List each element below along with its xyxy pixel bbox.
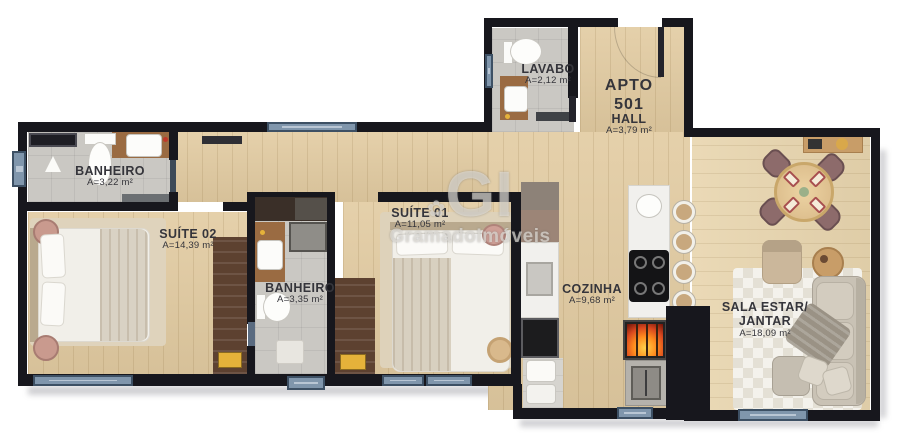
wall-top-left	[18, 122, 488, 132]
wall-kitchen-bottom-a	[513, 408, 620, 419]
bar-stool-1	[673, 201, 695, 223]
sala-name-line2: JANTAR	[715, 314, 815, 328]
bathroom2-accessory-dot	[260, 230, 265, 235]
label-banheiro-social: BANHEIRO A=3,35 m²	[250, 281, 350, 306]
cooktop-burner-1	[634, 256, 647, 269]
wall-living-bottom-b	[806, 410, 880, 421]
label-hall: HALL A=3,79 m²	[579, 112, 679, 137]
label-apto: APTO 501	[579, 76, 679, 114]
wall-kitchen-left-step	[513, 384, 522, 419]
corridor-window	[267, 122, 357, 132]
watermark: ✿GI GramadoImóveis	[388, 162, 552, 248]
bar-stool-2	[673, 231, 695, 253]
bathroom2-door-leaf	[248, 322, 255, 346]
banheiro-suite-name: BANHEIRO	[60, 164, 160, 178]
bathroom1-window	[12, 151, 26, 187]
table-centerpiece	[799, 187, 809, 197]
lavabo-sink	[504, 86, 528, 112]
suite02-nightstand-2	[33, 335, 59, 361]
entry-door-leaf	[658, 27, 664, 77]
suite01-window-1	[382, 375, 424, 386]
hall-area: A=3,79 m²	[579, 126, 679, 137]
bathroom2-window	[287, 376, 325, 390]
suite01-stool	[487, 337, 513, 363]
suite02-pillow-2	[40, 281, 66, 326]
island-sink	[636, 194, 662, 218]
bar-stool-3	[673, 261, 695, 283]
laundry-tub	[526, 384, 556, 404]
suite02-name: SUÍTE 02	[138, 227, 238, 241]
bathroom2-shower	[289, 222, 327, 252]
bathroom1-shelf	[29, 133, 77, 147]
watermark-flower-icon: ✿	[427, 196, 445, 221]
label-sala: SALA ESTAR/ JANTAR A=18,09 m²	[715, 300, 815, 340]
armchair-back	[762, 240, 802, 252]
wall-top-mid-a	[484, 18, 618, 27]
label-banheiro-suite: BANHEIRO A=3,22 m²	[60, 164, 160, 189]
sideboard-box	[808, 139, 822, 149]
watermark-initials: GI	[445, 158, 513, 230]
sala-area: A=18,09 m²	[715, 329, 815, 340]
corridor-shelf	[202, 136, 242, 144]
kitchen-window	[617, 407, 653, 419]
suite01-bed-blanket	[393, 258, 451, 371]
wall-bathroom1-bottom	[18, 202, 178, 211]
wall-bathroom1-right-top	[169, 122, 178, 160]
bathroom2-sink	[257, 240, 283, 270]
chimney-wall	[666, 306, 710, 420]
label-suite02: SUÍTE 02 A=14,39 m²	[138, 227, 238, 252]
banheiro-social-name: BANHEIRO	[250, 281, 350, 295]
cooktop-burner-2	[652, 256, 665, 269]
suite02-area: A=14,39 m²	[138, 241, 238, 252]
lavabo-door-leaf	[569, 96, 576, 122]
label-cozinha: COZINHA A=9,68 m²	[542, 282, 642, 307]
stove-grill-bar-2	[646, 324, 648, 356]
side-table	[812, 247, 844, 279]
bathroom1-sink	[126, 134, 162, 157]
shower-head-icon	[45, 156, 61, 172]
apto-line1: APTO	[579, 76, 679, 95]
suite02-pillow-1	[40, 233, 66, 278]
bathroom2-cabinet-box	[295, 198, 327, 220]
washer	[526, 360, 556, 382]
sofa-backrest	[856, 278, 865, 404]
lavabo-window	[485, 54, 493, 88]
cozinha-area: A=9,68 m²	[542, 296, 642, 307]
wall-hall-right	[684, 18, 693, 136]
sideboard-bowl	[836, 138, 848, 150]
wall-living-top	[684, 128, 880, 137]
bathroom2-mat	[276, 340, 304, 364]
building-shadow-bottom-left	[28, 386, 512, 395]
side-table-decor	[820, 255, 828, 263]
building-shadow-right	[879, 150, 886, 418]
bathroom1-bench	[122, 194, 170, 202]
stove-grill-bar-1	[636, 324, 638, 356]
bathroom1-door-leaf	[170, 160, 176, 192]
kitchen-oven-cabinet	[521, 318, 559, 358]
wall-bathroom2-left-bottom	[247, 346, 255, 374]
suite02-bed-headboard	[30, 228, 38, 342]
suite02-wardrobe-drawer	[218, 352, 242, 368]
living-room-window	[738, 409, 808, 421]
floor-plan: BANHEIRO A=3,22 m² SUÍTE 02 A=14,39 m² B…	[0, 0, 900, 442]
wall-right	[871, 128, 880, 418]
cozinha-name: COZINHA	[542, 282, 642, 296]
lavabo-toilet	[510, 38, 542, 65]
lavabo-name: LAVABO	[498, 62, 598, 76]
wall-bathroom2-top	[247, 192, 335, 197]
bathroom1-accessory-dot	[163, 137, 168, 142]
lavabo-accessory-dot	[505, 114, 510, 119]
stove-grill-bar-3	[656, 324, 658, 356]
wall-bathroom1-right-bottom	[169, 192, 178, 211]
suite01-wardrobe-drawer	[340, 354, 366, 370]
sala-name-line1: SALA ESTAR/	[715, 300, 815, 314]
watermark-name: GramadoImóveis	[388, 226, 552, 248]
banheiro-suite-area: A=3,22 m²	[60, 178, 160, 189]
cooktop-burner-4	[652, 282, 665, 295]
banheiro-social-area: A=3,35 m²	[250, 295, 350, 306]
kitchen-faucet	[645, 370, 647, 396]
hall-name: HALL	[579, 112, 679, 126]
suite01-window-2	[426, 375, 472, 386]
suite02-window	[33, 375, 133, 386]
